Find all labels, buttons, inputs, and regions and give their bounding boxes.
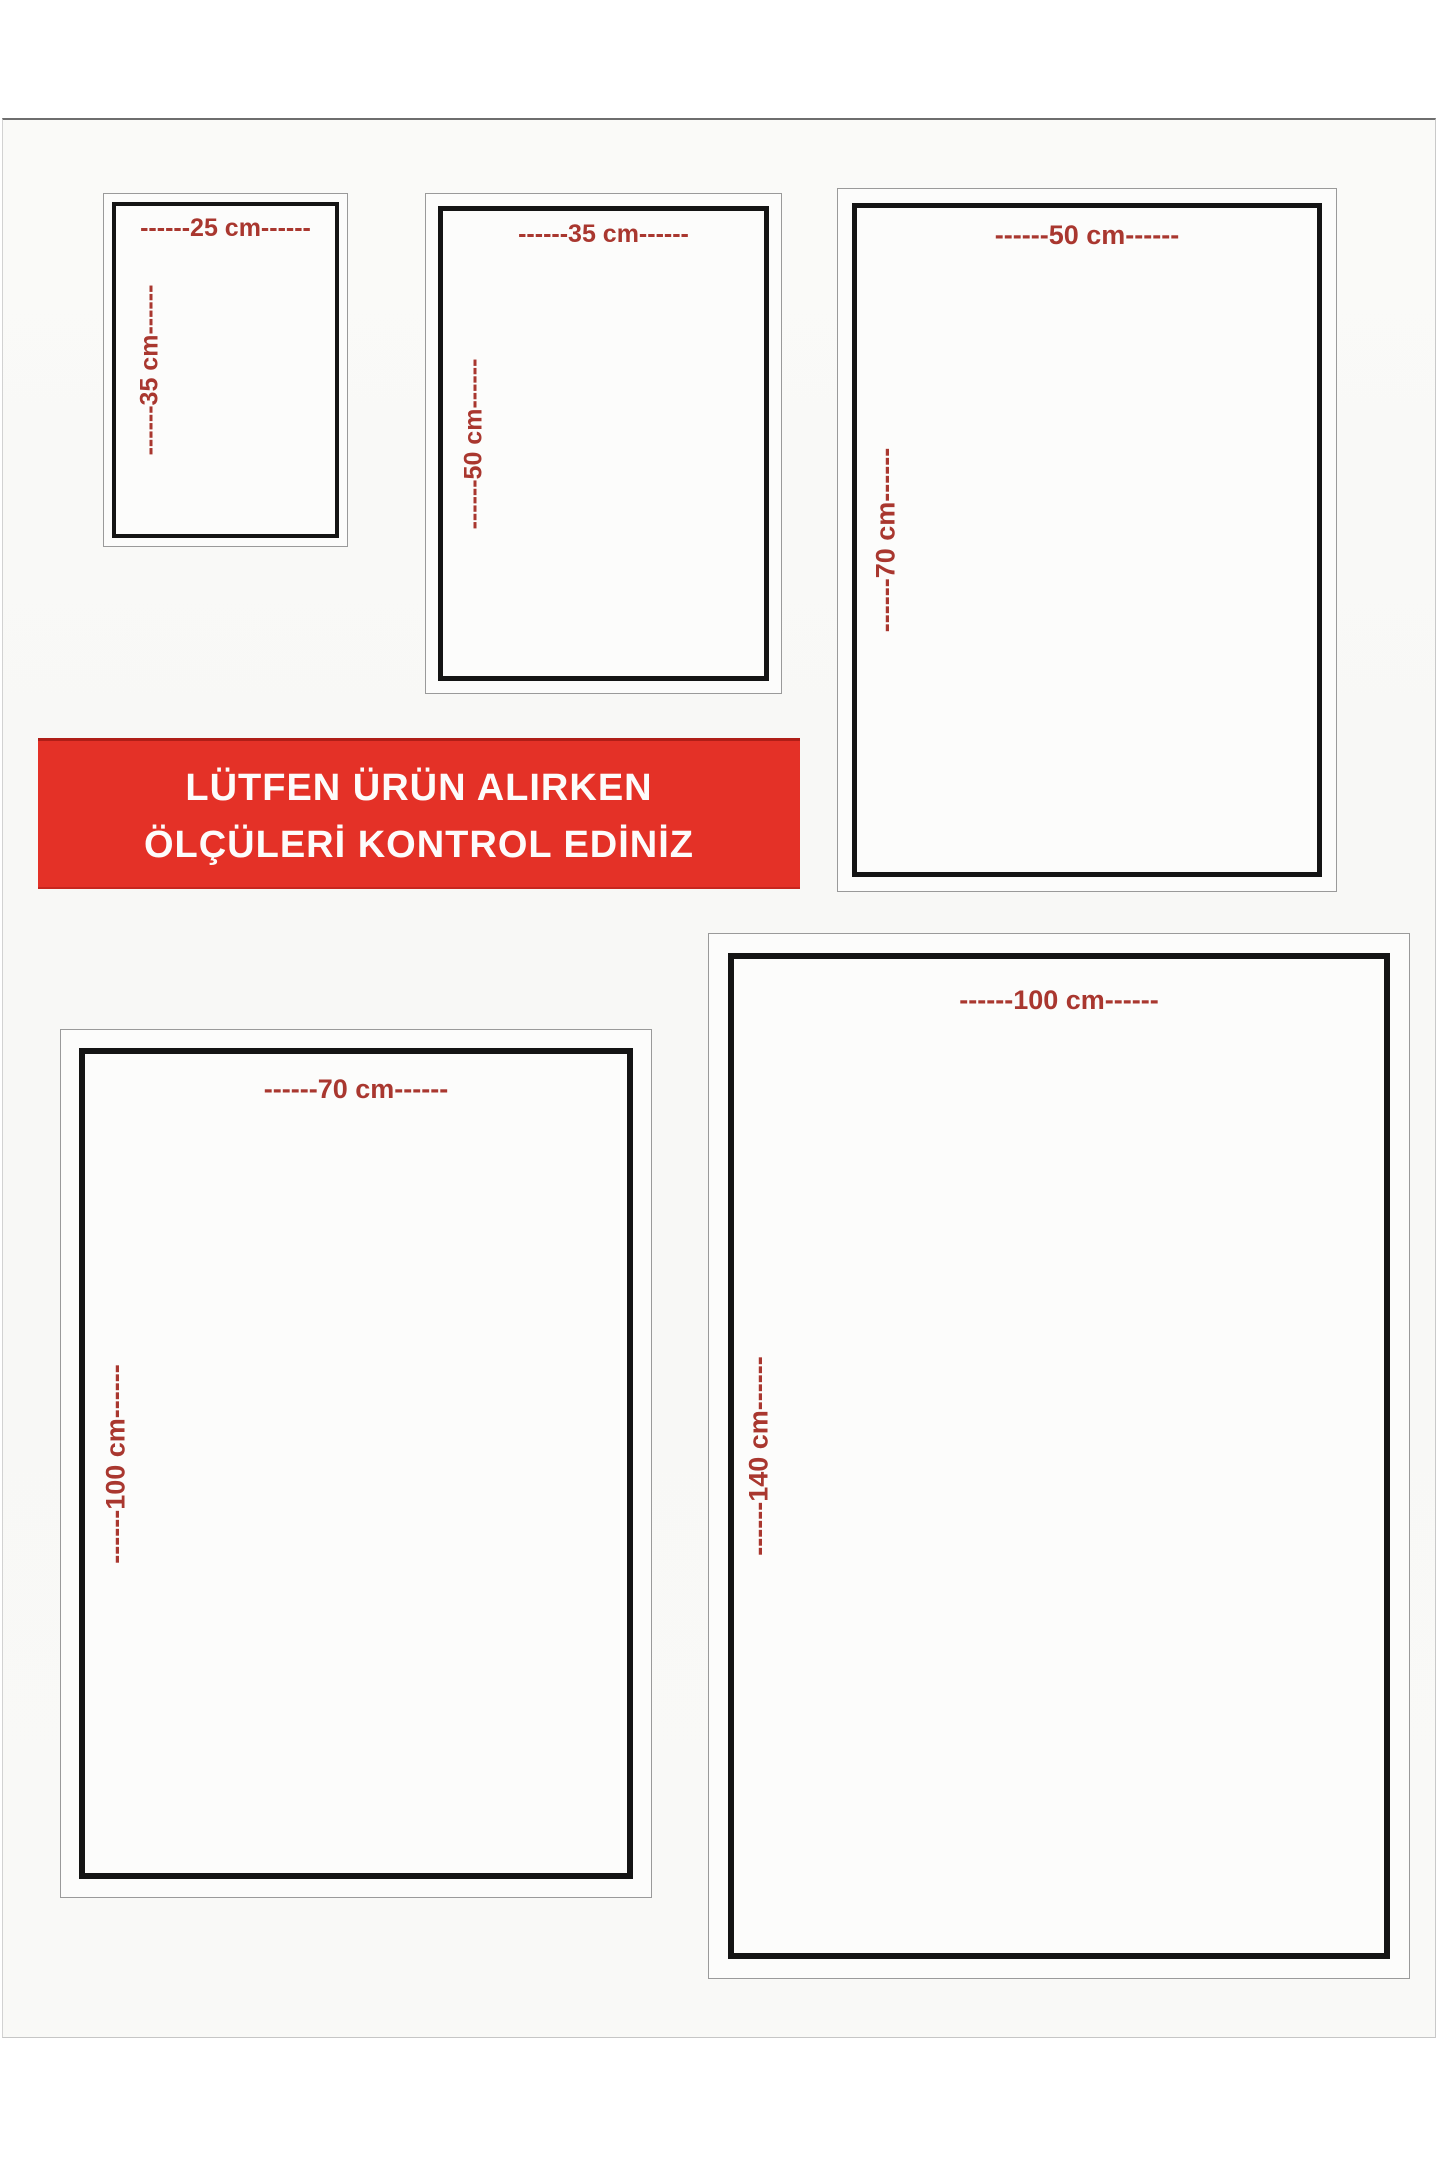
height-label: ------140 cm------ xyxy=(744,1356,775,1555)
height-label: ------100 cm------ xyxy=(101,1364,132,1563)
size-box-35x50: ------35 cm------ ------50 cm------ xyxy=(425,193,782,694)
size-box-frame: ------35 cm------ ------50 cm------ xyxy=(438,206,769,681)
size-box-70x100: ------70 cm------ ------100 cm------ xyxy=(60,1029,652,1898)
height-label: ------35 cm------ xyxy=(136,285,165,456)
size-box-frame: ------70 cm------ ------100 cm------ xyxy=(79,1048,633,1879)
size-box-frame: ------100 cm------ ------140 cm------ xyxy=(728,953,1390,1959)
height-label: ------50 cm------ xyxy=(460,358,489,529)
size-box-50x70: ------50 cm------ ------70 cm------ xyxy=(837,188,1337,892)
warning-line-2: ÖLÇÜLERİ KONTROL EDİNİZ xyxy=(38,817,800,874)
size-box-frame: ------50 cm------ ------70 cm------ xyxy=(852,203,1322,877)
width-label: ------35 cm------ xyxy=(443,220,764,249)
size-box-25x35: ------25 cm------ ------35 cm------ xyxy=(103,193,348,547)
width-label: ------25 cm------ xyxy=(116,214,335,243)
size-box-100x140: ------100 cm------ ------140 cm------ xyxy=(708,933,1410,1979)
size-box-frame: ------25 cm------ ------35 cm------ xyxy=(112,202,339,538)
width-label: ------100 cm------ xyxy=(734,985,1384,1016)
warning-banner: LÜTFEN ÜRÜN ALIRKEN ÖLÇÜLERİ KONTROL EDİ… xyxy=(38,738,800,889)
width-label: ------50 cm------ xyxy=(857,220,1317,251)
width-label: ------70 cm------ xyxy=(85,1074,627,1105)
warning-line-1: LÜTFEN ÜRÜN ALIRKEN xyxy=(38,760,800,817)
height-label: ------70 cm------ xyxy=(871,448,902,632)
